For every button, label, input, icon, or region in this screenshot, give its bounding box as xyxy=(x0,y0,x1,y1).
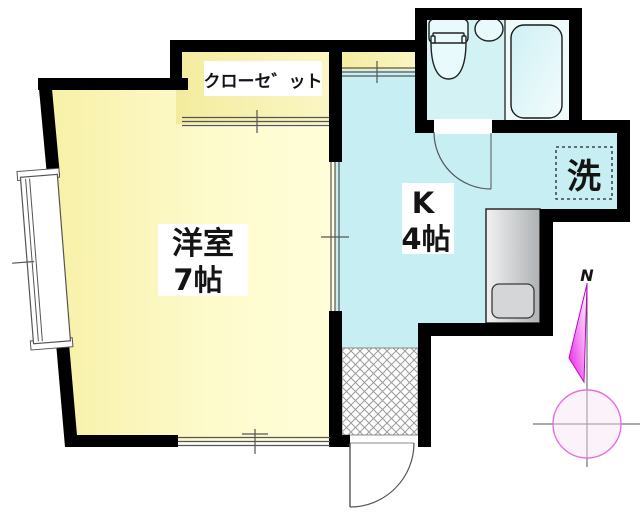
north-label: N xyxy=(580,266,594,285)
counter-sink xyxy=(492,284,534,318)
closet-label-text: クローセ゛ット xyxy=(204,71,323,92)
kitchen-counter xyxy=(486,209,540,323)
bathtub-icon xyxy=(511,25,562,118)
kitchen-size: 4帖 xyxy=(401,222,450,256)
bath-sink-icon xyxy=(475,17,503,41)
main-room-size: 7帖 xyxy=(173,263,222,297)
floorplan-svg: クローセ゛ット 洋室 7帖 K 4帖 洗 N xyxy=(0,0,640,519)
floorplan-canvas: クローセ゛ット 洋室 7帖 K 4帖 洗 N xyxy=(0,0,640,519)
kitchen-name: K xyxy=(412,186,436,220)
north-arrow xyxy=(569,284,587,382)
main-room-name: 洋室 xyxy=(172,226,234,262)
main-room-label: 洋室 7帖 xyxy=(158,224,248,297)
closet-label: クローセ゛ット xyxy=(204,61,323,96)
kitchen-label: K 4帖 xyxy=(401,183,454,256)
laundry-label-text: 洗 xyxy=(567,157,601,197)
entrance-door-swing xyxy=(350,443,414,507)
compass-circle xyxy=(553,390,621,458)
genkan-hatch xyxy=(342,348,418,435)
